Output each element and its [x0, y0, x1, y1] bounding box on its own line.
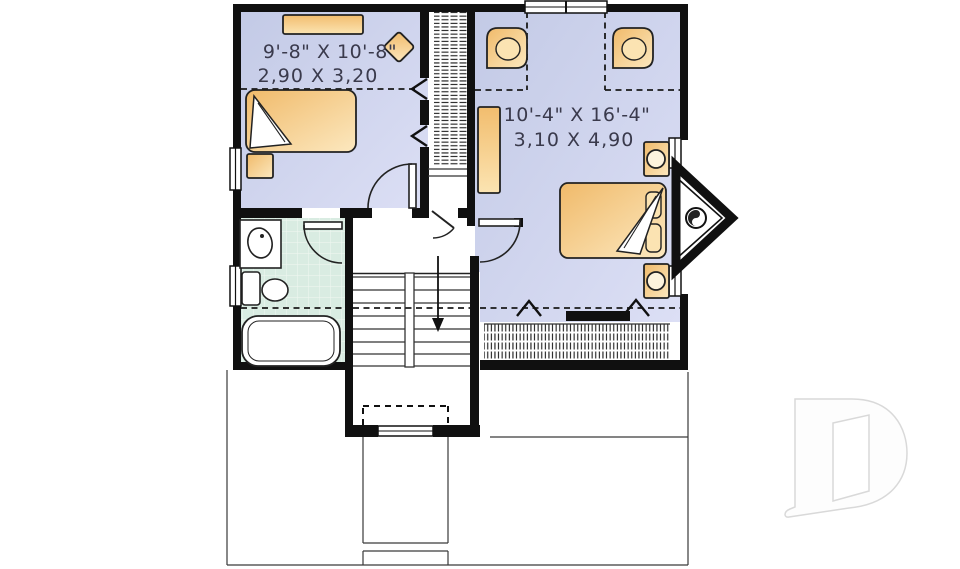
wall-stair-bottom-a	[345, 425, 378, 437]
dresser	[283, 15, 363, 34]
nightstand	[247, 154, 273, 178]
logo-d-door	[833, 415, 869, 501]
stair-landing-dashed	[363, 406, 448, 425]
wall-master-bottom	[480, 360, 688, 370]
bedroom2-dim-metric: 3,10 X 4,90	[514, 129, 635, 151]
arrowhead-down	[432, 318, 444, 332]
wall-right-upper	[680, 4, 688, 140]
wall-hall-a	[233, 208, 302, 218]
attic-hatch-band	[484, 324, 670, 360]
stair-rail	[405, 273, 414, 367]
bedroom1-dim-metric: 2,90 X 3,20	[258, 65, 379, 87]
vanity-sink	[240, 220, 281, 268]
armchair-left	[487, 28, 527, 68]
bedroom1-dim-imperial: 9'-8" X 10'-8"	[263, 41, 397, 63]
wall-bedroom1-right-c	[420, 147, 429, 218]
lower-outline-main	[227, 370, 688, 565]
nightstand-bottom	[644, 264, 669, 298]
triangular-bay-window	[676, 166, 732, 270]
wall-closet-jamb	[458, 208, 475, 218]
wall-stair-bottom-b	[433, 425, 480, 437]
wall-stair-left	[345, 218, 353, 437]
attic-hatch-strip	[434, 12, 467, 165]
wall-bedroom1-right-b	[420, 100, 429, 125]
wall-right-lower	[680, 294, 688, 364]
lower-floor-outline	[227, 370, 688, 565]
door-closet	[432, 211, 454, 238]
lower-outline-porch	[363, 437, 448, 565]
wall-stair-right	[470, 256, 479, 437]
stair-direction-arrow	[432, 256, 444, 332]
wall-top	[233, 4, 688, 12]
closet-shelf	[428, 169, 467, 176]
wall-hall-c	[412, 208, 429, 218]
knee-wall-segment	[566, 311, 630, 321]
window-bedroom1-left	[230, 148, 241, 190]
wall-bedroom1-right-a	[420, 4, 429, 78]
wall-hall-b	[340, 208, 372, 218]
wall-bedroom2-left	[467, 4, 475, 226]
bedroom2-dim-imperial: 10'-4" X 16'-4"	[504, 104, 651, 126]
window-bedroom2-top	[525, 1, 607, 13]
staircase	[353, 273, 470, 425]
builder-logo-watermark	[785, 399, 907, 517]
bathtub	[242, 316, 340, 366]
tall-dresser	[478, 107, 500, 193]
nightstand-top	[644, 142, 669, 176]
floor-plan-page: 9'-8" X 10'-8" 2,90 X 3,20 10'-4" X 16'-…	[0, 0, 960, 569]
window-stairwell-bottom	[378, 426, 433, 436]
window-bathroom-left	[230, 266, 241, 306]
lamp	[647, 150, 665, 168]
faucet-dot	[260, 234, 264, 238]
armchair-right	[613, 28, 653, 68]
floor-plan-drawing: 9'-8" X 10'-8" 2,90 X 3,20 10'-4" X 16'-…	[0, 0, 960, 569]
lamp	[647, 272, 665, 290]
